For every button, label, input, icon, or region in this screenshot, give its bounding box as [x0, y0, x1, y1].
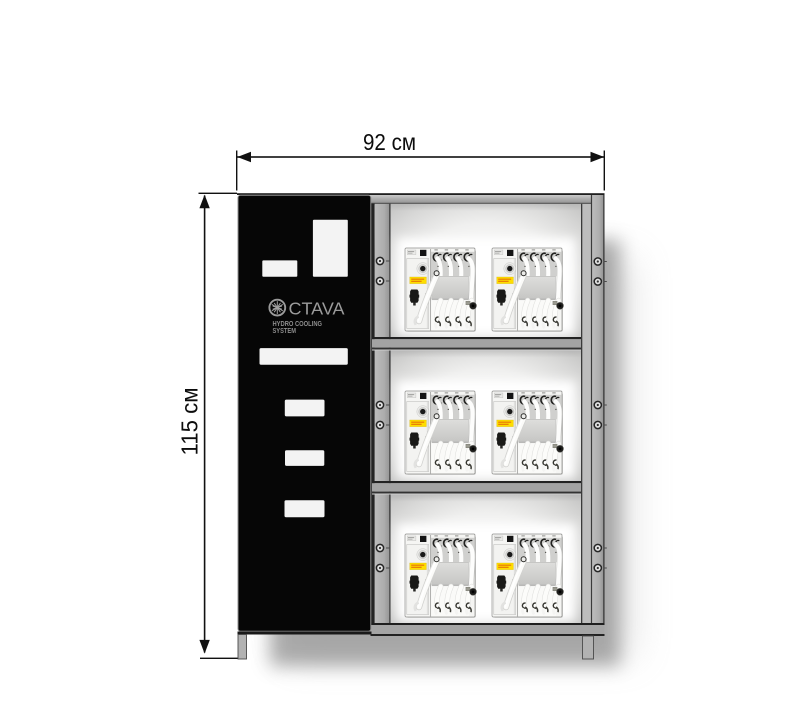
svg-text:SYSTEM: SYSTEM — [273, 328, 297, 335]
svg-text:115 см: 115 см — [177, 388, 203, 456]
svg-text:CTAVA: CTAVA — [289, 299, 345, 319]
svg-text:HYDRO COOLING: HYDRO COOLING — [273, 321, 323, 328]
svg-text:92 см: 92 см — [363, 129, 416, 155]
